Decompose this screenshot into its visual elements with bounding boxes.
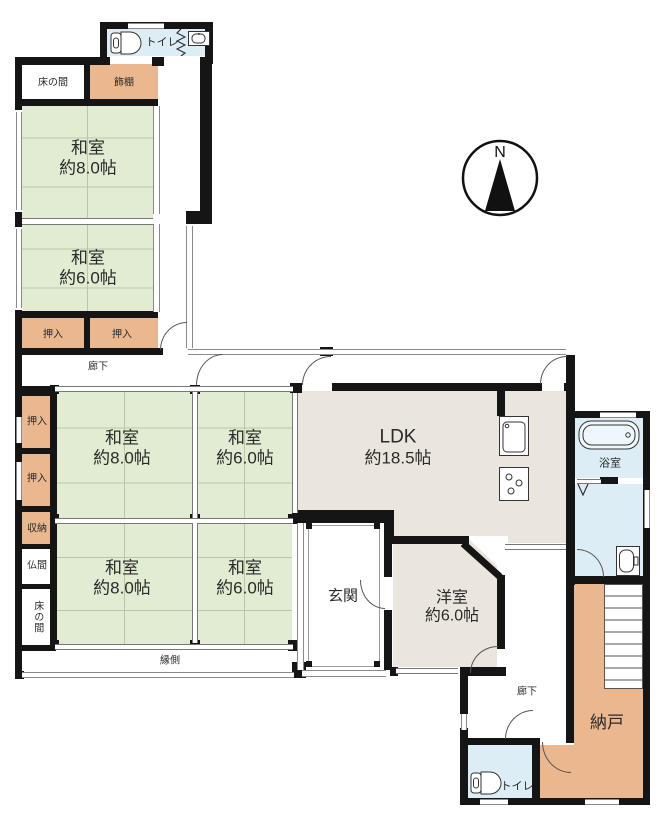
label-toilet-top: トイレ [146,37,179,50]
post [374,661,380,667]
wall [50,392,57,518]
label-oshiire-mid-2: 押入 [27,473,47,485]
wall [15,212,22,227]
label-youshitsu: 洋室 約6.0帖 [425,590,479,627]
post [306,661,312,667]
label-tokonoma-mid: 床の間 [31,601,43,634]
label-engawa: 縁側 [160,655,180,667]
compass-north-icon: N [459,131,541,223]
washbasin-icon [616,546,640,576]
label-ldk: LDK 約18.5帖 [364,426,431,467]
wall [332,383,542,391]
label-washitsu-nw-6: 和室 約6.0帖 [59,248,117,287]
label-washitsu-c-6: 和室 約6.0帖 [216,428,274,467]
folding-door-icon [577,484,589,496]
hand-basin-icon [188,31,210,46]
label-washitsu-s-6: 和室 約6.0帖 [216,558,274,597]
door-arc [302,356,331,385]
window [22,672,294,678]
window [16,229,22,308]
wall [460,676,468,714]
label-toilet-bottom: トイレ [501,781,534,794]
label-oshiire-nw-left: 押入 [43,329,63,341]
toilet-icon [110,31,148,55]
wall [152,57,164,66]
wall [566,577,574,743]
sliding-door [55,386,293,392]
label-washitsu-nw-8: 和室 約8.0帖 [59,138,117,177]
wall [298,515,390,523]
label-tokonoma-top: 床の間 [38,77,68,89]
label-washitsu-c-8: 和室 約8.0帖 [93,428,151,467]
window [153,106,160,214]
sliding-door [292,393,298,513]
window [153,224,160,312]
label-oshiire-nw-right: 押入 [112,329,132,341]
window [188,349,566,355]
label-washitsu-s-8: 和室 約8.0帖 [93,558,151,597]
stove-icon [499,467,529,501]
wall [391,536,469,544]
partition [505,544,566,550]
wall [600,477,618,484]
wall [643,411,650,805]
label-oshiire-mid-1: 押入 [27,416,47,428]
bathtub-icon [578,420,640,450]
label-rouka-lower: 廊下 [517,686,537,698]
wall [84,311,90,350]
entrance-sliding-door [302,670,386,677]
wall [384,515,392,577]
sliding-door [22,218,153,225]
window [16,462,22,500]
wall [15,57,22,110]
wall [497,575,505,649]
sliding-door [55,518,293,524]
window [297,523,304,670]
compass-north-label: N [494,144,506,161]
room-engawa [22,649,294,672]
stairs-icon [604,584,643,689]
wall [568,576,643,584]
sliding-door [192,392,198,518]
wall [50,518,57,645]
wall [532,738,540,805]
label-shuno: 収納 [27,523,47,535]
post [306,523,312,529]
wall [15,57,110,65]
label-rouka-upper: 廊下 [88,361,108,373]
window [461,714,467,730]
window [480,799,508,805]
door-arc [160,322,187,350]
label-nando: 納戸 [590,713,624,733]
window [186,226,193,348]
window [16,417,22,443]
wall [15,348,163,355]
wall [566,355,575,585]
wall [100,24,107,58]
window [644,490,650,528]
window [16,112,22,210]
label-kazaridana: 飾棚 [114,77,134,89]
door-arc [505,710,533,739]
wall [186,211,212,224]
kitchen-sink-icon [499,416,529,456]
wall-kitchen [497,391,505,416]
window [600,412,636,418]
sliding-door [396,668,458,674]
wall [467,738,537,745]
floor-plan: N トイレ 床の間 飾棚 和室 約8.0帖 和室 約6.0帖 押入 押入 廊下 … [0,0,657,822]
label-yokushitsu: 浴室 [599,458,621,471]
label-genkan: 玄関 [328,587,358,604]
sliding-door [55,644,293,650]
sliding-door [192,523,198,643]
window [585,799,619,805]
door-arc [196,354,223,385]
window [128,23,164,29]
wall [384,610,392,670]
post [374,523,380,529]
label-butsuma: 仏間 [27,560,47,572]
wall [84,62,90,102]
wall [22,99,158,106]
door-arc [540,356,567,384]
wall [22,311,158,318]
wall [200,57,212,215]
